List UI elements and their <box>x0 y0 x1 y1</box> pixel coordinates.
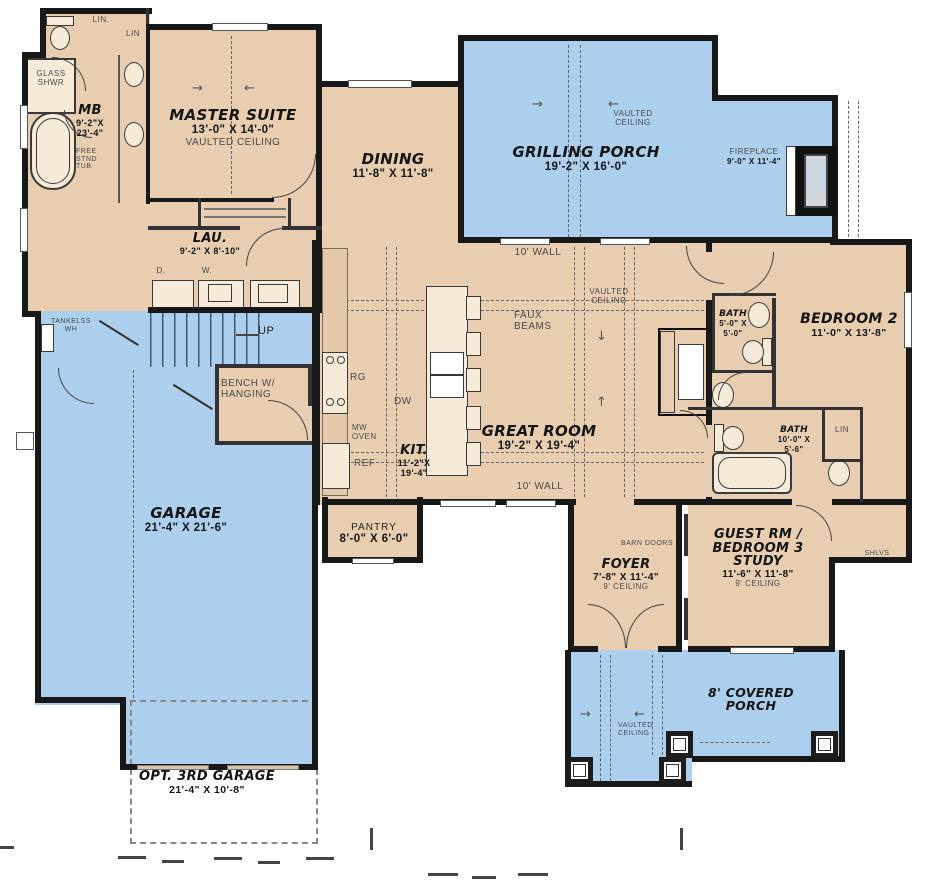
burner <box>326 398 334 406</box>
faux-beam-line <box>634 247 635 497</box>
up-label: UP <box>258 325 286 337</box>
slab-mark <box>118 856 146 859</box>
floor-plan: LIN. LIN GLASS SHWR MB 9'-2"X 23'-4" FRE… <box>0 0 950 883</box>
slab-mark <box>162 860 184 863</box>
sink-fixture <box>124 62 144 87</box>
faux-beams-label: FAUX BEAMS <box>514 310 562 332</box>
faux-beam-line <box>584 247 585 497</box>
porch-beam-line <box>848 101 849 237</box>
window <box>600 238 650 245</box>
wall <box>120 697 126 770</box>
closet-shelf <box>204 208 286 210</box>
wall <box>40 8 46 58</box>
slab-mark <box>214 857 242 860</box>
porch-column <box>811 731 838 758</box>
faux-beam-line <box>574 247 575 497</box>
arrow-left-icon: ← <box>634 708 645 721</box>
wall10-bottom-label: 10' WALL <box>500 481 580 492</box>
vanity-wall <box>118 55 120 203</box>
guest-room-label: GUEST RM / BEDROOM 3 STUDY 11'-6" X 11'-… <box>695 528 821 589</box>
dining-label: DINING 11'-8" X 11'-8" <box>330 152 456 181</box>
slab-mark <box>518 873 548 876</box>
porch-column <box>666 731 693 758</box>
arrow-right-icon: → <box>580 708 591 721</box>
faux-beam-line <box>326 462 704 463</box>
burner <box>337 398 345 406</box>
window <box>212 23 268 31</box>
great-room-label: GREAT ROOM 19'-2" X 19'-4" <box>455 424 623 453</box>
window <box>500 238 550 245</box>
porch-column <box>659 757 686 784</box>
fridge-fixture <box>322 443 350 489</box>
wall <box>822 407 825 462</box>
wall <box>215 441 312 445</box>
cporch-beam-line <box>652 655 653 755</box>
barn-doors-label: BARN DOORS <box>618 540 676 548</box>
slab-mark <box>680 828 683 850</box>
microwave-label: MW OVEN <box>352 424 386 442</box>
wall <box>568 505 574 652</box>
wall <box>148 307 322 313</box>
window <box>730 647 794 654</box>
slab-mark <box>370 828 373 850</box>
master-bath-label: MB 9'-2"X 23'-4" <box>62 104 118 138</box>
fireplace-firebox <box>804 154 828 208</box>
wall <box>829 557 835 652</box>
cporch-beam-line <box>662 655 663 755</box>
bath2-label: BATH 10'-0" X 5'-6" <box>768 426 820 454</box>
dryer-fixture <box>152 280 194 308</box>
lin-bath-label: LIN <box>826 426 858 435</box>
foyer-label: FOYER 7'-8" X 11'-4" 9' CEILING <box>578 558 674 592</box>
toilet-bowl <box>50 26 70 50</box>
media-cabinet <box>660 331 675 413</box>
wall <box>822 459 862 462</box>
wall <box>830 239 912 245</box>
cporch-beam-line <box>610 655 611 781</box>
wall <box>35 697 126 703</box>
bedroom2-label: BEDROOM 2 11'-0" X 13'-8" <box>790 312 908 339</box>
faux-beam-line <box>624 247 625 497</box>
wall <box>148 226 322 230</box>
sink-fixture <box>124 122 144 147</box>
opt-garage-label: OPT. 3RD GARAGE 21'-4" X 10'-8" <box>132 770 282 796</box>
porch-beam-line <box>580 45 581 237</box>
range-label: RG <box>350 372 376 383</box>
arrow-right-icon: → <box>532 98 543 111</box>
wall <box>215 364 312 368</box>
slab-mark <box>0 846 14 849</box>
grilling-porch-area <box>458 35 718 243</box>
toilet-bowl <box>722 426 744 450</box>
arrow-down-icon: ↓ <box>596 330 607 343</box>
shlvs-label: SHLVS <box>856 550 898 558</box>
faux-beam-line <box>386 247 387 497</box>
washer-label: W. <box>196 267 218 276</box>
wall <box>712 35 718 101</box>
stool <box>466 296 481 320</box>
burner <box>337 356 345 364</box>
arrow-right-icon: → <box>192 82 203 95</box>
washer-door <box>208 284 232 302</box>
porch-beam-line <box>858 101 859 237</box>
faux-beam-line <box>326 300 704 301</box>
opening <box>274 198 316 202</box>
wall <box>198 198 201 230</box>
closet-shelf <box>204 216 286 218</box>
window <box>506 500 556 507</box>
arrow-left-icon: ← <box>244 82 255 95</box>
window <box>352 558 394 564</box>
slab-mark <box>428 873 458 876</box>
opening <box>576 499 634 505</box>
porch-vaulted-label: VAULTED CEILING <box>602 110 664 128</box>
slab-mark <box>306 857 334 860</box>
water-heater-label: TANKELSS WH <box>48 318 94 333</box>
kitchen-label: KIT. 11'-2"X 19'-4" <box>388 444 440 478</box>
cporch-beam-line <box>600 655 601 781</box>
wall <box>688 407 863 410</box>
master-suite-label: MASTER SUITE 13'-0" X 14'-0" VAULTED CEI… <box>150 108 316 148</box>
wall <box>906 239 912 563</box>
wall <box>860 407 863 502</box>
grilling-porch-label: GRILLING PORCH 19'-2" X 16'-0" <box>505 145 667 174</box>
wall <box>835 557 912 563</box>
glass-shower-label: GLASS SHWR <box>28 70 74 88</box>
wall <box>35 311 41 703</box>
toilet-tank <box>46 16 74 26</box>
cporch-dash <box>700 742 770 743</box>
arrow-left-icon: ← <box>608 98 619 111</box>
stool <box>466 332 481 356</box>
exterior-pad <box>16 432 34 450</box>
pantry-label: PANTRY 8'-0" X 6'-0" <box>328 522 420 546</box>
fireplace-label: FIREPLACE 9'-0" X 11'-4" <box>716 148 792 166</box>
bathtub-inner <box>718 457 786 489</box>
slab-mark <box>472 876 496 879</box>
fridge-label: REF <box>354 458 382 469</box>
wall <box>215 364 219 445</box>
wall <box>676 505 682 652</box>
island-sink-divider <box>431 374 463 376</box>
porch-beam-line <box>568 45 569 237</box>
window <box>348 80 412 88</box>
wall <box>308 364 312 406</box>
sink-fixture <box>828 460 850 486</box>
dishwasher-label: DW <box>394 396 422 407</box>
porch-column <box>566 757 593 784</box>
laundry-sink-basin <box>258 284 288 303</box>
wall <box>288 198 291 230</box>
window <box>20 208 28 252</box>
stairs <box>150 313 262 367</box>
window <box>20 105 28 149</box>
toilet-bowl <box>742 340 764 364</box>
wall <box>22 52 28 317</box>
lin-closet-label: LIN <box>118 30 148 39</box>
up-arrow-line <box>236 334 258 336</box>
wall <box>312 505 318 770</box>
free-tub-label: FREE STND TUB <box>76 148 112 171</box>
wall <box>772 298 776 410</box>
window <box>440 500 496 507</box>
media-tv <box>678 344 704 400</box>
arrow-up-icon: ↑ <box>596 396 607 409</box>
barn-door-panel <box>684 598 688 640</box>
barn-door-panel <box>684 514 688 556</box>
lin-closet-label: LIN. <box>84 16 118 25</box>
bath1-label: BATH 5'-0" X 5'-0" <box>712 310 754 338</box>
burner <box>326 356 334 364</box>
stool <box>466 368 481 392</box>
covered-porch-label: 8' COVERED PORCH <box>686 686 816 712</box>
wall10-top-label: 10' WALL <box>498 247 578 258</box>
cporch-vaulted-label: VAULTED CEILING <box>618 722 670 737</box>
bench-label: BENCH W/ HANGING <box>221 378 287 400</box>
slab-mark <box>258 861 280 864</box>
wall <box>316 24 322 311</box>
wall <box>40 8 152 14</box>
garage-label: GARAGE 21'-4" X 21'-6" <box>118 506 254 535</box>
dryer-label: D. <box>150 267 172 276</box>
laundry-label: LAU. 9'-2" X 8'-10" <box>156 232 264 256</box>
greatroom-vaulted-label: VAULTED CEILING <box>580 288 638 306</box>
